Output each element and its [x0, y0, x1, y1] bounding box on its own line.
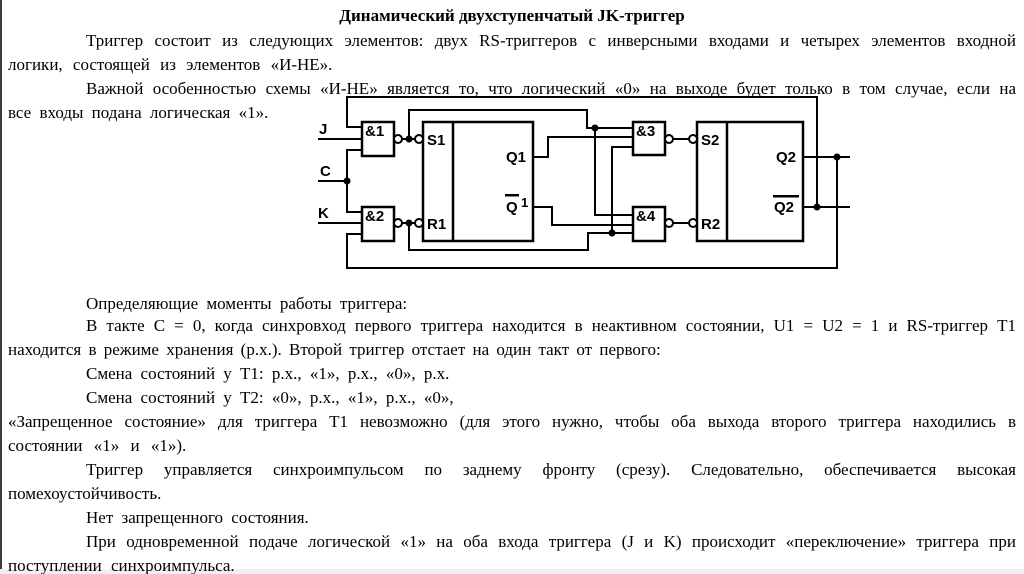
- s2-input-inversion-circle: [689, 135, 697, 143]
- junction-r1-line: [406, 220, 413, 227]
- trigger2-s-label: S2: [701, 132, 719, 149]
- body-paragraph-5: Смена состояний у Т1: р.х., «1», р.х., «…: [8, 362, 1016, 386]
- s1-input-inversion-circle: [415, 135, 423, 143]
- page-title: Динамический двухступенчатый JK-триггер: [0, 4, 1024, 28]
- junction-s1-line: [406, 136, 413, 143]
- r2-input-inversion-circle: [689, 219, 697, 227]
- g3-output-inversion-circle: [665, 135, 673, 143]
- trigger1-q-label: Q1: [506, 149, 526, 166]
- input-c-label: C: [320, 163, 331, 180]
- wire-r1-branch-to-g3: [612, 147, 633, 233]
- body-paragraph-6: Смена состояний у Т2: «0», р.х., «1», р.…: [8, 386, 1016, 410]
- gate-g4-label: &4: [636, 208, 656, 225]
- gate-g2-label: &2: [365, 208, 384, 225]
- body-paragraph-7: «Запрещенное состояние» для триггера Т1 …: [8, 410, 1016, 458]
- input-k-label: K: [318, 205, 329, 222]
- junction-nq2: [814, 204, 821, 211]
- g1-output-inversion-circle: [394, 135, 402, 143]
- body-paragraph-10: При одновременной подаче логической «1» …: [8, 530, 1016, 574]
- body-paragraph-8: Триггер управляется синхроимпульсом по з…: [8, 458, 1016, 506]
- junction-g3-input: [592, 125, 599, 132]
- g2-output-inversion-circle: [394, 219, 402, 227]
- r1-input-inversion-circle: [415, 219, 423, 227]
- jk-trigger-schematic: J C K &1 &2 &3 &4 S1 R1 Q1 Q 1 S2 R2 Q2 …: [310, 88, 860, 283]
- trigger1-nq-overbar: [505, 194, 519, 197]
- body-paragraph-3: Определяющие моменты работы триггера:: [8, 292, 1016, 316]
- slide-left-edge: [0, 0, 2, 574]
- input-j-label: J: [319, 121, 327, 138]
- trigger2-q-label: Q2: [776, 149, 796, 166]
- trigger1-nq-index: 1: [521, 195, 528, 210]
- trigger2-nq-label: Q2: [774, 199, 794, 216]
- trigger2-nq-overbar: [773, 195, 799, 198]
- wire-s1-branch-to-g4: [595, 128, 633, 215]
- trigger1-r-label: R1: [427, 216, 446, 233]
- trigger1-s-label: S1: [427, 132, 445, 149]
- gate-g1-label: &1: [365, 123, 384, 140]
- trigger1-nq-label: Q: [506, 199, 518, 216]
- body-paragraph-1: Триггер состоит из следующих элементов: …: [8, 29, 1016, 77]
- trigger2-r-label: R2: [701, 216, 720, 233]
- body-paragraph-4: В такте С = 0, когда синхровход первого …: [8, 314, 1016, 362]
- junction-c-branch: [344, 178, 351, 185]
- body-paragraph-9: Нет запрещенного состояния.: [8, 506, 1016, 530]
- g4-output-inversion-circle: [665, 219, 673, 227]
- gate-g3-label: &3: [636, 123, 655, 140]
- slide-page: Динамический двухступенчатый JK-триггер …: [0, 0, 1024, 574]
- junction-q2: [834, 154, 841, 161]
- junction-g4-input: [609, 230, 616, 237]
